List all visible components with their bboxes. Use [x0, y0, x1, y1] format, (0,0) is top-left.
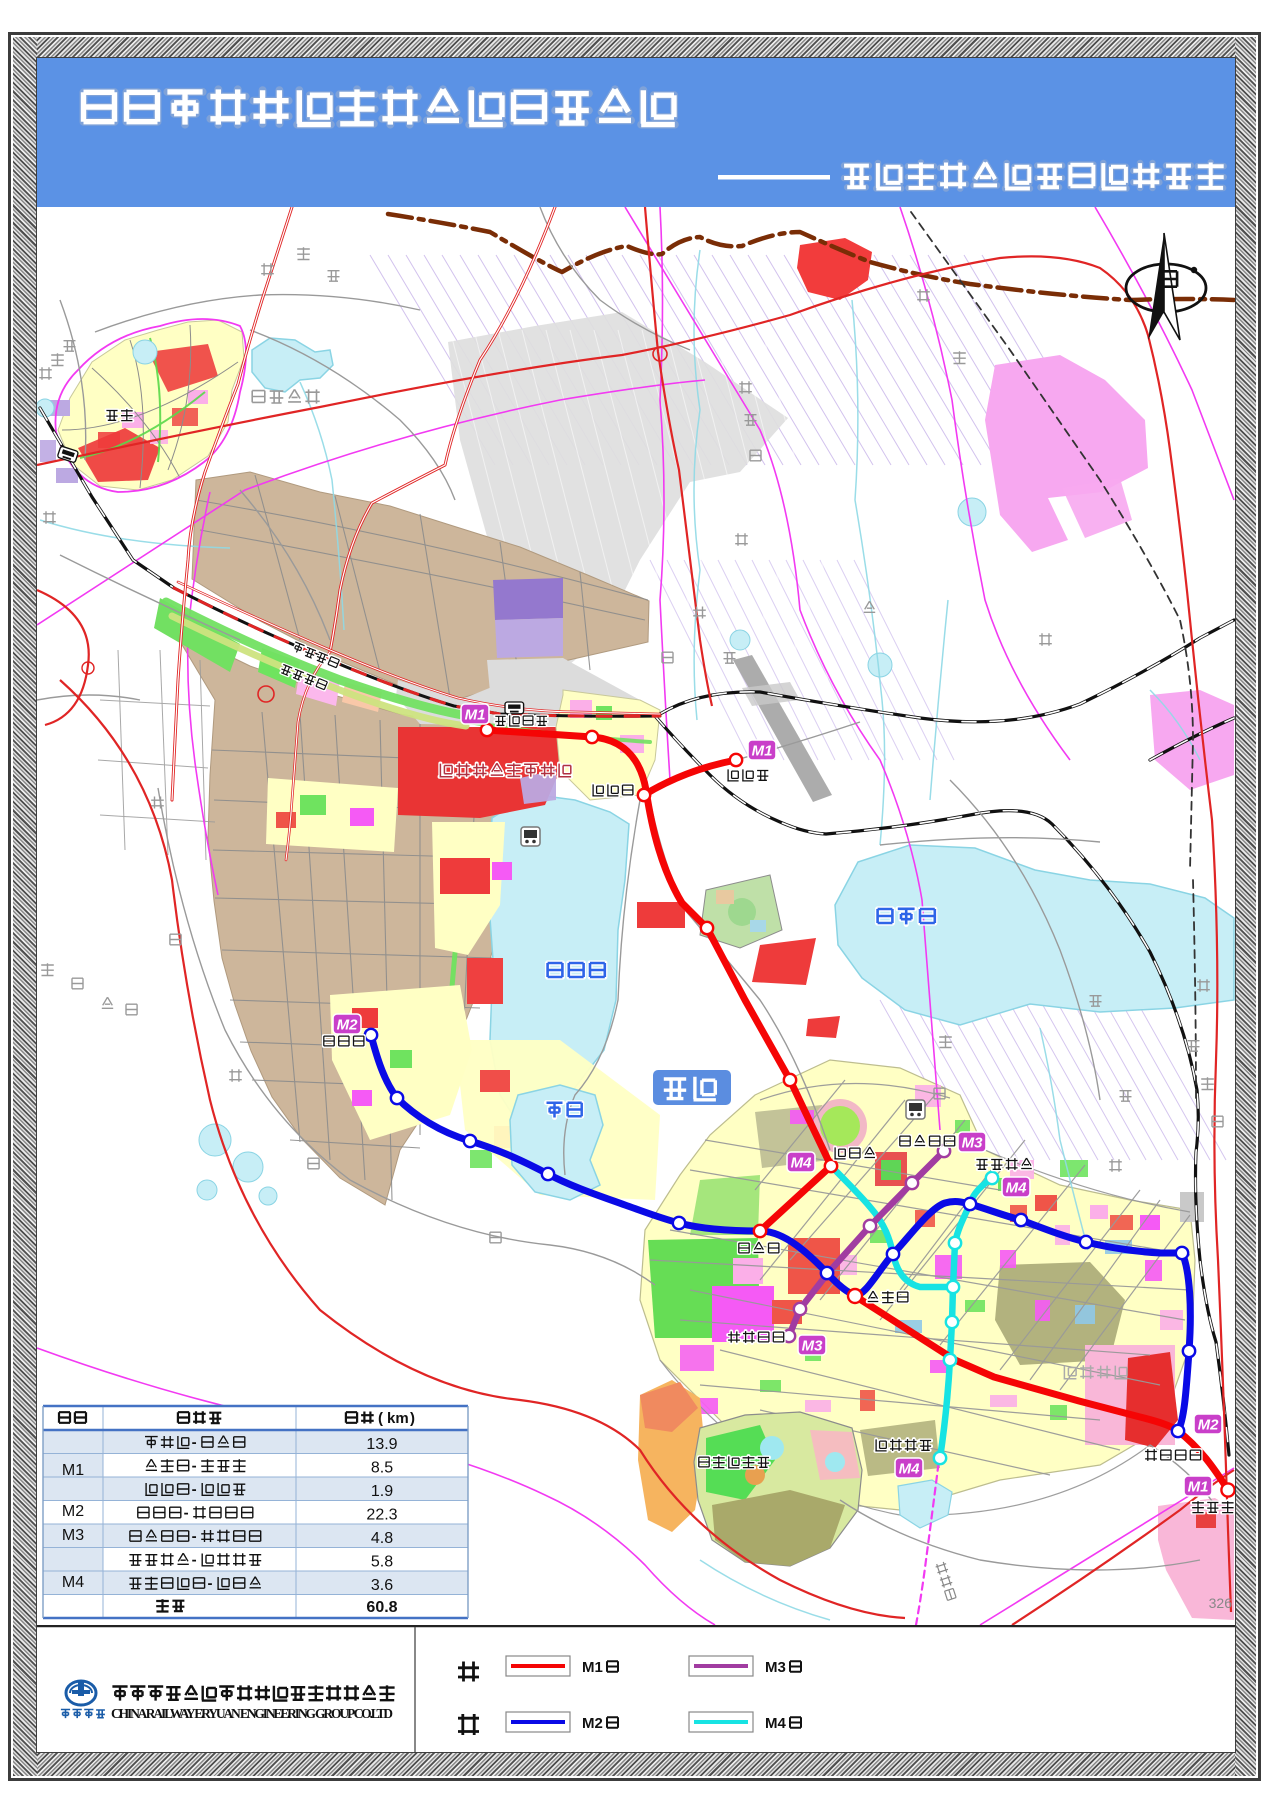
svg-text:-: - [192, 1481, 197, 1498]
svg-text:M3: M3 [962, 1135, 983, 1152]
svg-text:M3: M3 [62, 1527, 84, 1544]
svg-text:-: - [184, 1504, 189, 1521]
svg-text:(: ( [378, 1410, 383, 1427]
svg-text:M1: M1 [752, 743, 773, 760]
svg-text:3.6: 3.6 [371, 1577, 393, 1594]
svg-text:8.5: 8.5 [371, 1460, 393, 1477]
svg-text:13.9: 13.9 [366, 1436, 397, 1453]
svg-text:1.9: 1.9 [371, 1483, 393, 1500]
svg-text:M2: M2 [62, 1503, 84, 1520]
svg-text:M1: M1 [1188, 1479, 1209, 1496]
svg-text:CHINA RAILWAY ERYUAN ENGINEERI: CHINA RAILWAY ERYUAN ENGINEERING GROUP C… [111, 1706, 393, 1721]
svg-text:-: - [192, 1551, 197, 1568]
svg-text:M1: M1 [62, 1462, 84, 1479]
svg-text:M4: M4 [62, 1574, 84, 1591]
svg-text:km: km [387, 1410, 409, 1427]
svg-text:M2: M2 [337, 1017, 358, 1034]
svg-text:M1: M1 [465, 707, 486, 724]
svg-text:-: - [192, 1457, 197, 1474]
svg-text:5.8: 5.8 [371, 1554, 393, 1571]
svg-text:M2: M2 [1198, 1417, 1219, 1434]
svg-text:M4: M4 [765, 1715, 786, 1732]
svg-text:M3: M3 [802, 1338, 823, 1355]
svg-text:-: - [192, 1528, 197, 1545]
svg-text:M2: M2 [582, 1715, 603, 1732]
svg-text:): ) [410, 1410, 415, 1427]
svg-text:22.3: 22.3 [366, 1507, 397, 1524]
svg-text:M4: M4 [899, 1461, 920, 1478]
svg-text:60.8: 60.8 [366, 1599, 397, 1616]
svg-text:M4: M4 [791, 1155, 812, 1172]
svg-text:M3: M3 [765, 1659, 786, 1676]
svg-text:326: 326 [1209, 1595, 1233, 1611]
svg-text:M1: M1 [582, 1659, 603, 1676]
svg-text:-: - [208, 1575, 213, 1592]
svg-text:M4: M4 [1006, 1180, 1027, 1197]
svg-text:4.8: 4.8 [371, 1530, 393, 1547]
svg-text:-: - [192, 1434, 197, 1451]
